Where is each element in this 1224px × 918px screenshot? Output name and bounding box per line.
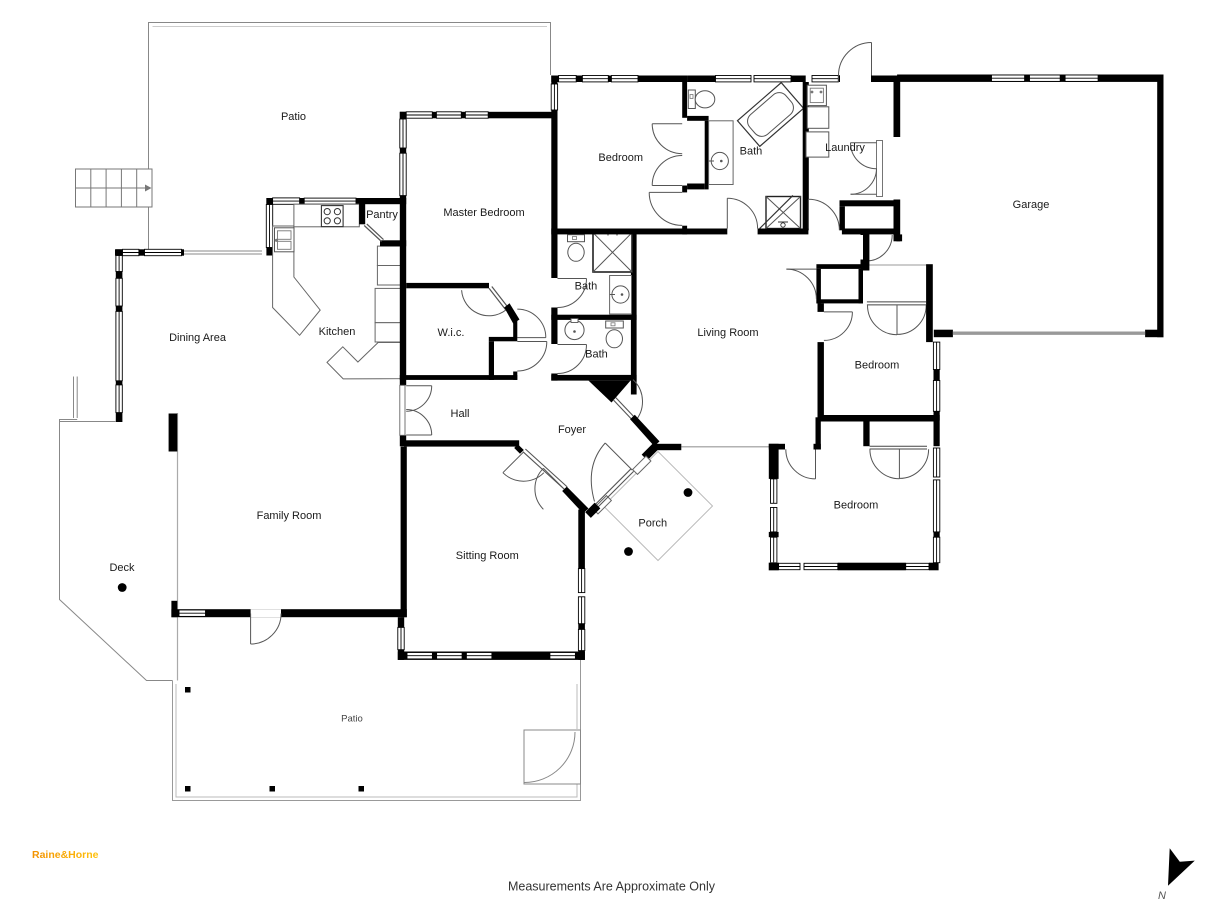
svg-text:Dining Area: Dining Area (169, 332, 227, 344)
svg-text:Garage: Garage (1013, 199, 1050, 211)
svg-text:Master Bedroom: Master Bedroom (443, 207, 524, 219)
svg-text:Bath: Bath (585, 349, 608, 361)
svg-text:Bedroom: Bedroom (834, 500, 879, 512)
svg-text:W.i.c.: W.i.c. (438, 327, 465, 339)
svg-text:Bedroom: Bedroom (855, 360, 900, 372)
svg-text:Bath: Bath (575, 281, 598, 293)
svg-text:Pantry: Pantry (366, 209, 398, 221)
svg-text:N: N (1158, 890, 1166, 902)
svg-text:Porch: Porch (638, 518, 667, 530)
svg-text:Patio: Patio (281, 111, 306, 123)
svg-text:Raine&Horne: Raine&Horne (32, 849, 99, 861)
svg-text:Hall: Hall (451, 408, 470, 420)
svg-text:Kitchen: Kitchen (319, 326, 356, 338)
svg-text:Deck: Deck (109, 562, 135, 574)
svg-text:Bedroom: Bedroom (598, 152, 643, 164)
svg-text:Measurements Are Approximate O: Measurements Are Approximate Only (508, 880, 716, 894)
svg-text:Bath: Bath (740, 146, 763, 158)
svg-text:Laundry: Laundry (825, 142, 865, 154)
svg-text:Foyer: Foyer (558, 424, 586, 436)
svg-text:Patio: Patio (341, 714, 363, 725)
svg-text:Family Room: Family Room (257, 510, 322, 522)
svg-text:Sitting Room: Sitting Room (456, 550, 519, 562)
svg-text:Living Room: Living Room (697, 327, 758, 339)
